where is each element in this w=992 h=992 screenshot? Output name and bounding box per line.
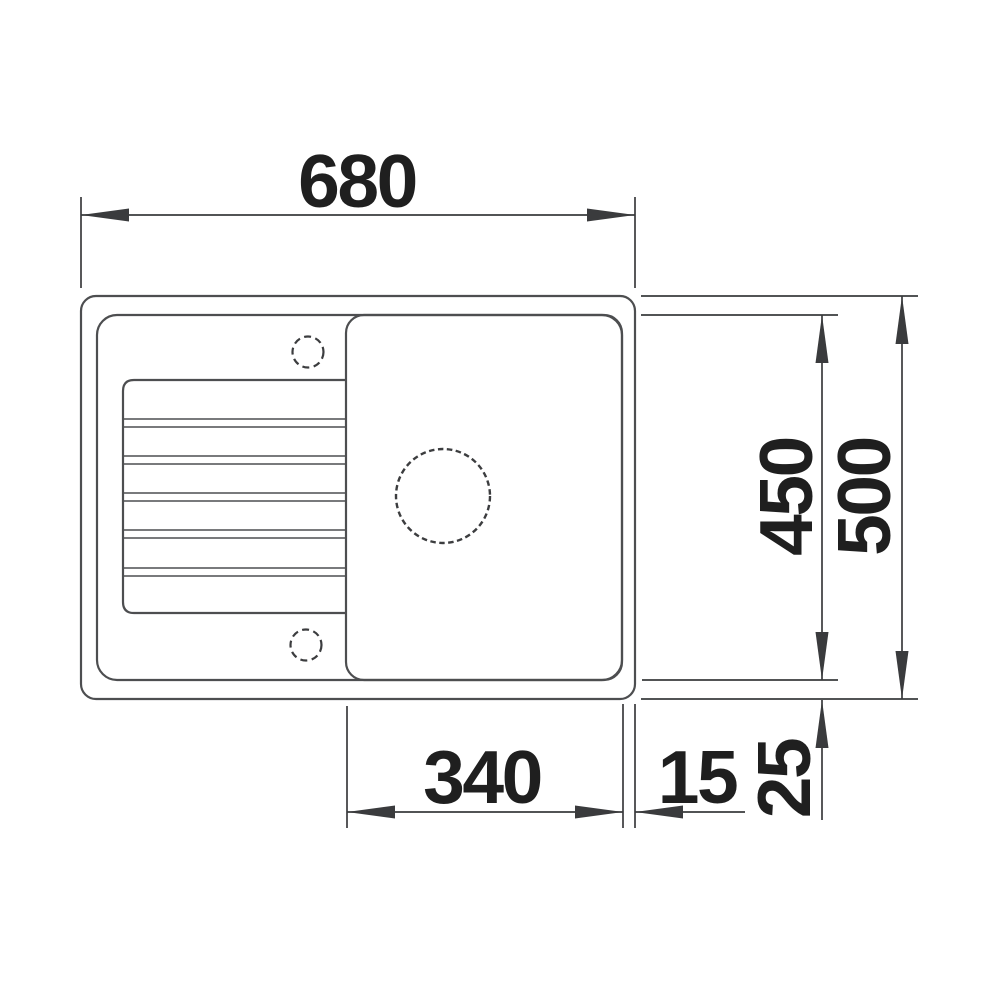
arrowhead-right [575,806,623,819]
arrowhead-left [347,806,395,819]
sink-inner-rim [97,315,622,680]
dimension-label-bottom-rim: 25 [742,739,826,818]
tap-hole-bottom [291,630,322,661]
sink-outer-edge [81,296,635,699]
tap-hole-top [293,337,324,368]
arrowhead-right [587,209,635,222]
drawing-canvas: 680 450 500 25 [0,0,992,992]
drainboard-ribs [124,419,345,576]
sink-body [81,296,635,699]
dimension-label-overall-width: 680 [298,139,416,223]
arrowhead-down [896,651,909,699]
drain-hole [396,449,490,543]
dimension-overall-width: 680 [81,139,635,288]
arrowhead-up [896,296,909,344]
sink-bowl [346,315,622,680]
dimension-bottom-group: 340 15 [347,704,745,828]
dimension-label-bowl-width: 340 [423,735,541,819]
drainboard-panel [123,380,346,613]
arrowhead-down [816,632,829,680]
dimension-label-inner-depth: 450 [744,438,828,556]
arrowhead-left [81,209,129,222]
arrowhead-up [816,315,829,363]
sink-technical-drawing: 680 450 500 25 [0,0,992,992]
dimension-label-side-rim: 15 [658,735,737,819]
dimension-label-overall-depth: 500 [822,438,906,556]
